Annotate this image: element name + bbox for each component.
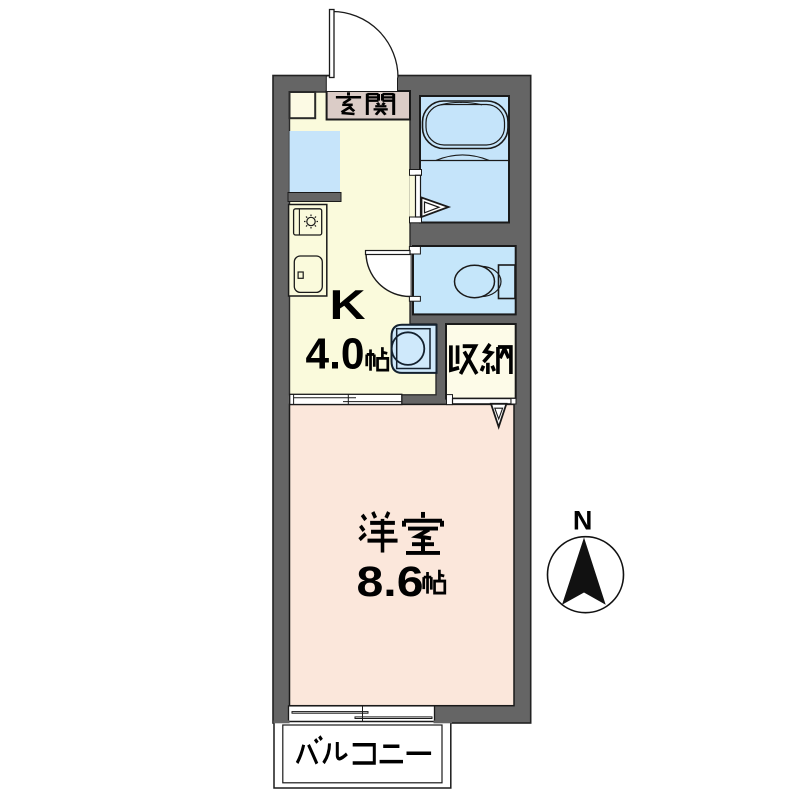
svg-text:4.0: 4.0: [306, 330, 365, 379]
svg-text:8.6: 8.6: [357, 558, 424, 606]
svg-text:K: K: [330, 281, 366, 328]
svg-text:N: N: [573, 506, 593, 536]
